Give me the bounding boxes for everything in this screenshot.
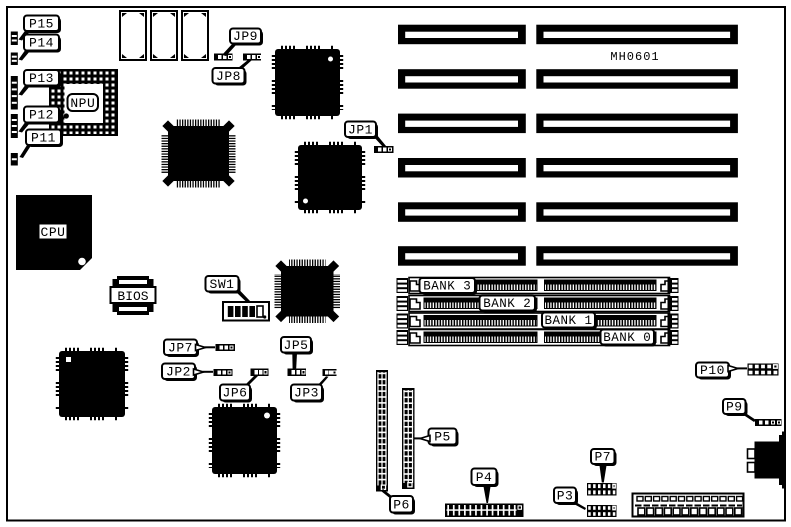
svg-text:P14: P14 <box>29 36 54 51</box>
svg-text:BANK 2: BANK 2 <box>483 297 531 311</box>
svg-text:CPU: CPU <box>41 225 66 240</box>
svg-text:JP9: JP9 <box>233 29 258 44</box>
svg-text:P4: P4 <box>476 470 493 485</box>
svg-text:P12: P12 <box>29 108 54 123</box>
svg-text:JP6: JP6 <box>223 386 248 401</box>
svg-text:JP8: JP8 <box>216 69 241 84</box>
svg-text:NPU: NPU <box>70 96 95 111</box>
svg-text:P5: P5 <box>434 430 451 445</box>
svg-text:P10: P10 <box>700 363 725 378</box>
svg-text:BANK 3: BANK 3 <box>423 280 471 294</box>
svg-text:JP7: JP7 <box>168 340 193 355</box>
svg-text:P13: P13 <box>29 71 54 86</box>
svg-text:P6: P6 <box>393 497 410 512</box>
svg-text:P11: P11 <box>31 130 56 145</box>
svg-text:P15: P15 <box>29 16 54 31</box>
svg-text:P9: P9 <box>726 400 743 415</box>
svg-text:BANK 1: BANK 1 <box>544 314 592 328</box>
svg-text:MH0601: MH0601 <box>610 50 659 64</box>
svg-text:JP3: JP3 <box>294 386 319 401</box>
svg-text:BIOS: BIOS <box>117 289 148 304</box>
svg-text:P3: P3 <box>557 488 574 503</box>
svg-text:JP2: JP2 <box>166 364 191 379</box>
svg-text:SW1: SW1 <box>210 277 235 292</box>
svg-text:JP1: JP1 <box>348 122 373 137</box>
svg-text:P7: P7 <box>594 450 611 465</box>
svg-text:JP5: JP5 <box>284 338 309 353</box>
svg-text:BANK 0: BANK 0 <box>603 331 651 345</box>
